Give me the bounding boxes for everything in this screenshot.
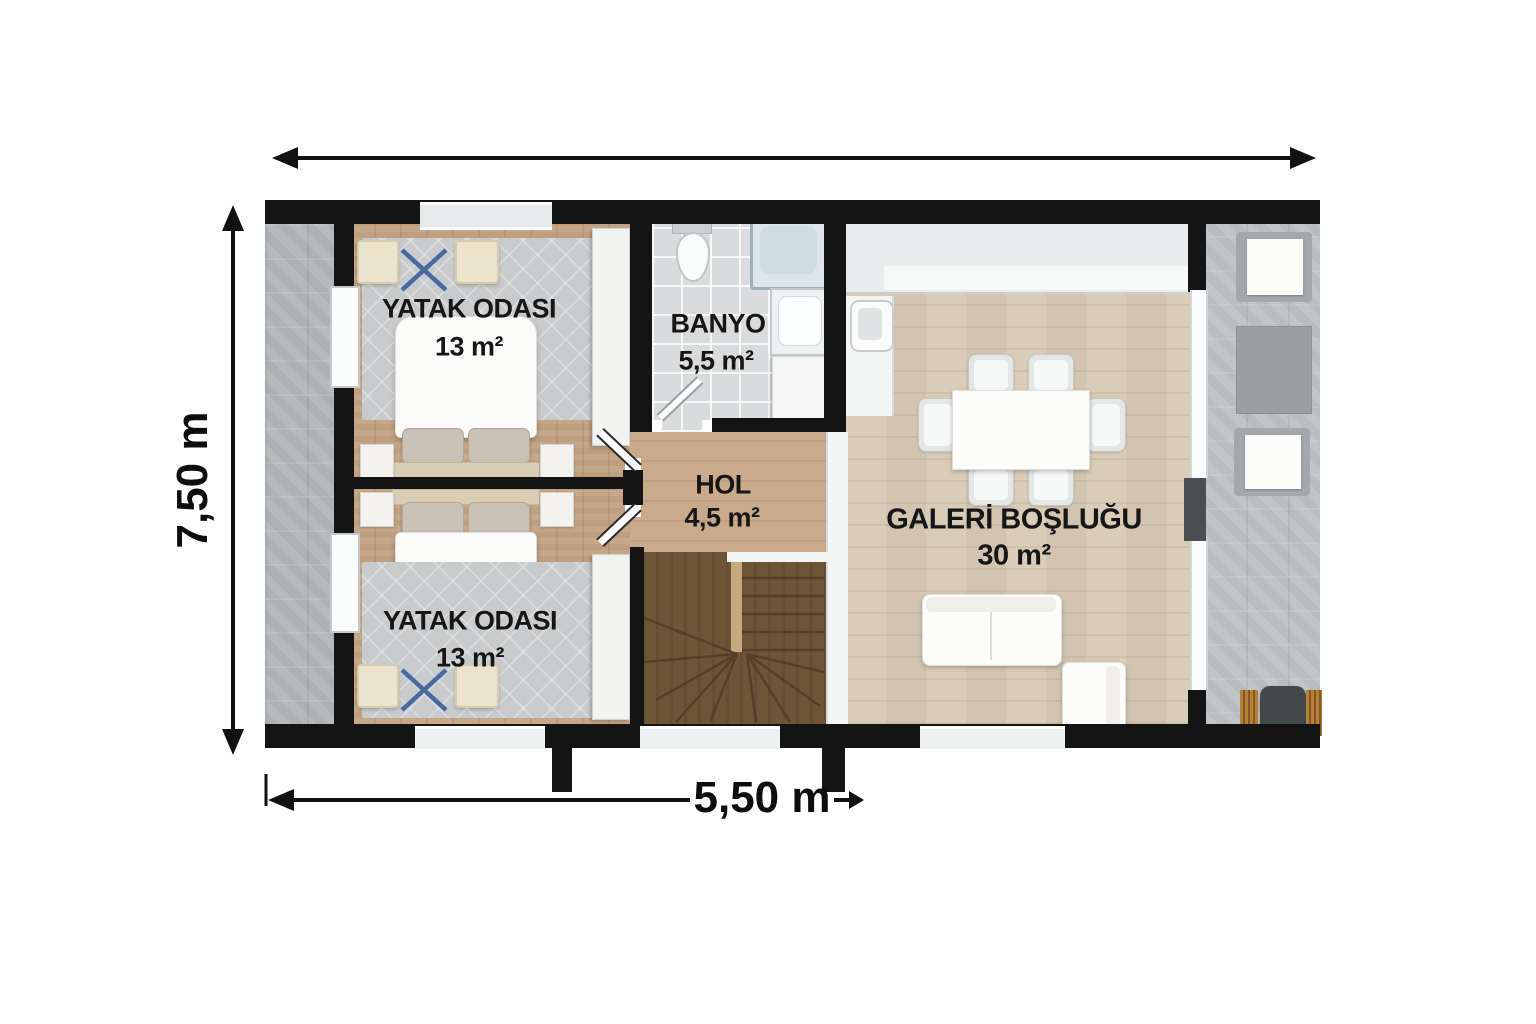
room-area-bedroom-top: 13 m²: [435, 332, 503, 363]
bed-pillow: [468, 428, 530, 464]
sofa-seat-divider: [990, 612, 992, 660]
ottoman: [455, 240, 499, 284]
shower-basin: [778, 296, 822, 346]
dimension-arrow-left: [222, 205, 244, 755]
terrace-chair-cushion: [1245, 435, 1301, 489]
window-balcony: [330, 286, 360, 388]
door-post: [625, 458, 641, 470]
wall-bedroom-divider: [334, 477, 640, 489]
ottoman: [357, 664, 399, 708]
wall-hall-pier: [623, 470, 643, 505]
wall-terrace-bottom: [1188, 690, 1206, 724]
window-bottom: [415, 726, 545, 752]
nightstand: [360, 444, 394, 479]
wardrobe: [592, 228, 630, 446]
wall-terrace-mid: [1184, 478, 1206, 541]
wardrobe: [592, 554, 630, 720]
room-area-banyo: 5,5 m²: [678, 346, 753, 377]
dining-table: [952, 390, 1090, 470]
window-bottom: [920, 726, 1065, 752]
room-area-hol: 4,5 m²: [684, 503, 759, 534]
dining-chair: [1086, 398, 1126, 452]
terrace-table: [1236, 326, 1312, 414]
gallery-ledge-highlight: [884, 266, 1190, 290]
dimension-arrow-top: [272, 147, 1316, 169]
wall-terrace-top: [1188, 212, 1206, 292]
room-name-bedroom-top: YATAK ODASI: [382, 294, 556, 325]
window-top: [420, 202, 552, 230]
fridge-inner: [858, 308, 882, 340]
wall-stub: [552, 748, 572, 792]
room-name-banyo: BANYO: [670, 309, 765, 340]
bed-pillow: [402, 428, 464, 464]
bathtub-inner: [760, 226, 817, 274]
nightstand: [540, 492, 574, 527]
window-living-terrace: [1190, 290, 1208, 478]
door-post: [652, 420, 662, 432]
window-bottom: [640, 726, 780, 752]
terrace-chair-cushion: [1247, 239, 1303, 295]
wall-bathroom-living: [824, 212, 846, 430]
nightstand: [360, 492, 394, 527]
room-name-galeri: GALERİ BOŞLUĞU: [886, 504, 1142, 537]
room-name-bedroom-bottom: YATAK ODASI: [383, 606, 557, 637]
dimension-label-width: 5,50 m: [694, 773, 831, 823]
gallery-railing: [826, 432, 848, 724]
floor-plan: YATAK ODASI 13 m² BANYO 5,5 m² HOL 4,5 m…: [0, 0, 1536, 1024]
door-post: [702, 420, 712, 432]
nightstand: [540, 444, 574, 479]
sofa-back: [926, 597, 1056, 612]
wall-stairs-left: [630, 547, 644, 724]
room-area-bedroom-bottom: 13 m²: [436, 643, 504, 674]
dimension-label-height: 7,50 m: [168, 412, 218, 549]
window-living-terrace: [1190, 541, 1208, 690]
dining-chair: [1028, 464, 1074, 506]
room-area-galeri: 30 m²: [977, 540, 1050, 573]
stairs-guard: [727, 552, 828, 562]
stairs-stringer: [731, 562, 742, 652]
armchair-back: [1106, 666, 1120, 726]
dining-chair: [968, 464, 1014, 506]
window-balcony: [330, 533, 360, 633]
wall-bathroom-left: [630, 212, 652, 432]
door-post: [625, 505, 641, 517]
room-name-hol: HOL: [695, 470, 751, 501]
ottoman: [357, 240, 399, 284]
bath-cabinet: [772, 356, 830, 419]
